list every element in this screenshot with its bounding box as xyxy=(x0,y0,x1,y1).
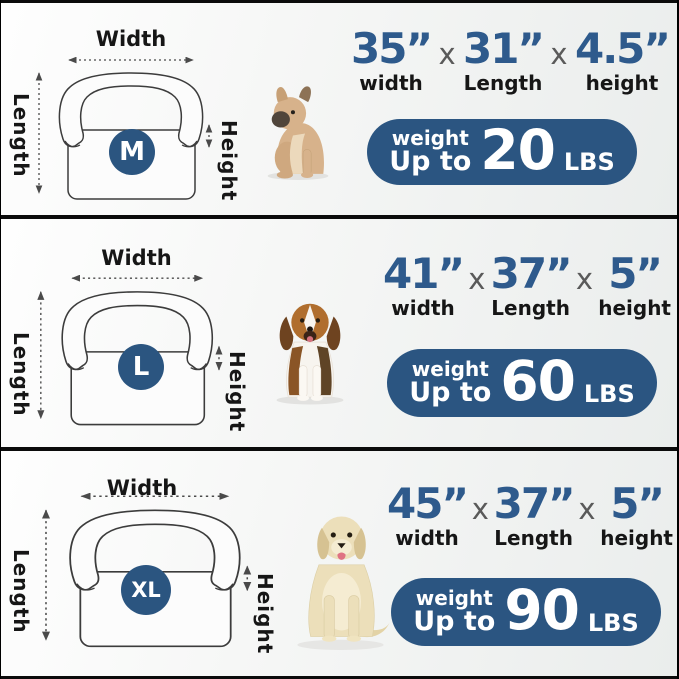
dimension-height: 5” height xyxy=(600,482,673,550)
width-dimension-label: Width xyxy=(66,246,207,270)
times-separator: x xyxy=(576,262,593,296)
times-separator: x xyxy=(438,37,455,71)
size-info-xl: 45” width x 37” Length x 5” height weigh… xyxy=(387,451,673,676)
dog-photo-french-bulldog xyxy=(262,85,334,181)
height-dimension-label: Height xyxy=(217,115,241,207)
weight-capacity-badge: weight Up to 90 LBS xyxy=(391,578,661,646)
weight-capacity-badge: weight Up to 20 LBS xyxy=(367,119,637,185)
weight-caption: weight Up to xyxy=(409,359,491,407)
size-section-xl: Width Length Height XL xyxy=(1,451,677,676)
weight-number: 60 xyxy=(500,354,575,409)
size-badge-m: M xyxy=(109,129,155,175)
dimensions-row: 45” width x 37” Length x 5” height xyxy=(387,482,673,550)
height-dimension-label: Height xyxy=(253,555,277,673)
dog-photo-beagle xyxy=(270,287,350,405)
dimension-width: 41” width xyxy=(383,252,463,320)
weight-caption: weight Up to xyxy=(389,128,471,176)
dimension-length: 37” Length xyxy=(491,252,571,320)
dimension-height: 4.5” height xyxy=(575,27,669,95)
length-dimension-label: Length xyxy=(9,531,33,651)
times-separator: x xyxy=(578,492,595,526)
size-badge-l: L xyxy=(118,344,164,390)
weight-unit: LBS xyxy=(588,609,639,637)
dimensions-row: 35” width x 31” Length x 4.5” height xyxy=(351,27,669,95)
weight-capacity-badge: weight Up to 60 LBS xyxy=(387,349,657,417)
dog-bed-size-chart-infographic: Width Length Height M xyxy=(0,0,679,679)
dimension-width: 45” width xyxy=(387,482,467,550)
weight-number: 20 xyxy=(480,123,555,178)
size-info-m: 35” width x 31” Length x 4.5” height wei… xyxy=(351,3,669,215)
times-separator: x xyxy=(472,492,489,526)
width-dimension-label: Width xyxy=(63,27,199,51)
dimension-length: 37” Length xyxy=(494,482,574,550)
height-dimension-label: Height xyxy=(225,327,249,457)
size-badge-xl: XL xyxy=(121,565,171,615)
dog-photo-labrador xyxy=(292,497,390,651)
length-dimension-label: Length xyxy=(9,77,33,193)
size-info-l: 41” width x 37” Length x 5” height weigh… xyxy=(383,219,671,447)
dimension-width: 35” width xyxy=(351,27,431,95)
length-dimension-label: Length xyxy=(9,315,33,433)
weight-unit: LBS xyxy=(564,148,615,176)
dimensions-row: 41” width x 37” Length x 5” height xyxy=(383,252,671,320)
dimension-height: 5” height xyxy=(598,252,671,320)
weight-number: 90 xyxy=(504,583,579,638)
size-section-l: Width Length Height L xyxy=(1,219,677,447)
times-separator: x xyxy=(468,262,485,296)
dimension-length: 31” Length xyxy=(463,27,543,95)
weight-unit: LBS xyxy=(584,380,635,408)
size-section-m: Width Length Height M xyxy=(1,3,677,215)
times-separator: x xyxy=(550,37,567,71)
weight-caption: weight Up to xyxy=(413,588,495,636)
